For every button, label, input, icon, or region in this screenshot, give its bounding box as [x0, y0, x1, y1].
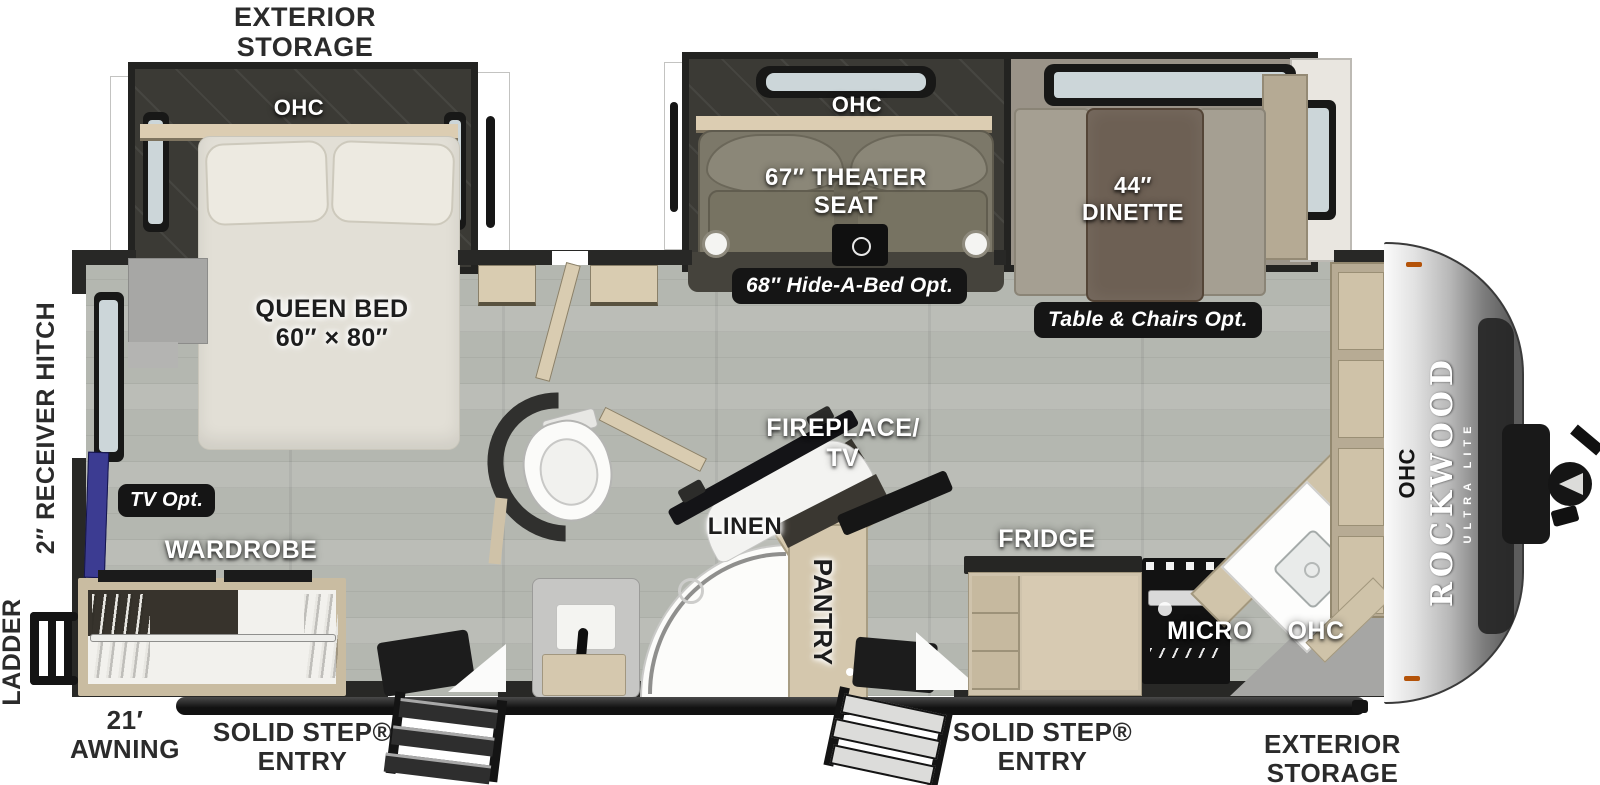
console-logo	[852, 237, 871, 256]
pillow-right	[331, 140, 456, 226]
ladder-rung	[64, 616, 72, 682]
wardrobe-countertop-item-2	[224, 570, 312, 582]
step-tread	[398, 698, 498, 729]
exterior-storage-rear-label: EXTERIOR STORAGE	[215, 2, 395, 62]
dinette-label: 44″ DINETTE	[1043, 172, 1223, 226]
bedroom-slide-flare-window	[486, 116, 495, 228]
dinette-cabinet-column	[1262, 74, 1308, 260]
awning-label: 21′ AWNING	[55, 706, 195, 764]
queen-bed-label: QUEEN BED 60″ × 80″	[232, 295, 432, 353]
wardrobe-countertop-item-1	[98, 570, 216, 582]
wall-top-3	[994, 250, 1006, 265]
bedroom-ohc-label: OHC	[254, 95, 344, 121]
ladder-rail-left	[30, 612, 39, 685]
corner-cabinet-shelf	[128, 342, 178, 368]
theater-seat-label: 67″ THEATER SEAT	[746, 164, 946, 221]
ladder-rung	[48, 616, 56, 682]
wardrobe-label: WARDROBE	[151, 536, 331, 566]
theater-slide-flare-window	[670, 102, 678, 212]
cabinet-face-2	[1338, 360, 1384, 438]
step-tread	[391, 725, 495, 756]
front-ohc-label: OHC	[1396, 438, 1421, 508]
marker-light-bottom	[1404, 676, 1420, 681]
bedroom-tv	[84, 452, 109, 579]
vanity-base	[542, 654, 626, 696]
entry-right-label: SOLID STEP® ENTRY	[950, 718, 1135, 776]
wardrobe-cabinet	[78, 578, 346, 696]
fireplace-tv-label: FIREPLACE/ TV	[763, 414, 923, 473]
fridge-door	[1022, 576, 1138, 690]
hitch-coupler	[1502, 424, 1550, 544]
theater-ohc-label: OHC	[812, 92, 902, 118]
ladder-label: LADDER	[0, 587, 26, 717]
wardrobe-rod	[90, 634, 336, 642]
pantry-label: PANTRY	[808, 532, 838, 692]
closet-door-2	[590, 265, 658, 306]
theater-slide-window-glass	[766, 73, 926, 91]
exterior-storage-front-label: EXTERIOR STORAGE	[1240, 730, 1425, 785]
dinette-side-window-glass	[1305, 108, 1329, 212]
rear-ladder	[30, 610, 84, 690]
brand-series: ULTRA LITE	[1462, 357, 1474, 607]
hitch-handle	[1570, 424, 1600, 455]
pillow-left	[205, 140, 330, 226]
awning-rail	[176, 697, 1366, 715]
cupholder-right	[962, 230, 990, 258]
entry-steps-left	[383, 687, 511, 785]
hitch-foot	[1550, 505, 1579, 527]
step-tread	[384, 753, 492, 785]
corner-cabinet	[128, 258, 208, 344]
awning-rail-endcap	[1352, 700, 1368, 713]
hide-a-bed-badge: 68″ Hide-A-Bed Opt.	[732, 268, 967, 304]
receiver-hitch-label: 2″ RECEIVER HITCH	[32, 273, 60, 583]
stove-burner	[1158, 602, 1172, 616]
stove-vents	[1150, 648, 1222, 658]
wall-left-window-gap	[72, 294, 86, 458]
fridge-label: FRIDGE	[987, 525, 1107, 555]
rear-window-glass	[99, 300, 118, 452]
brand-logo: ROCKWOOD ULTRA LITE	[1425, 357, 1485, 607]
linen-label: LINEN	[700, 513, 790, 541]
shower-drain	[678, 578, 704, 604]
closet-door-1	[478, 265, 536, 306]
brand-name: ROCKWOOD	[1425, 357, 1460, 607]
entry-left-label: SOLID STEP® ENTRY	[210, 718, 395, 776]
cabinet-face-1	[1338, 272, 1384, 350]
dinette-skylight-glass	[1054, 72, 1286, 98]
table-chairs-badge: Table & Chairs Opt.	[1034, 302, 1262, 338]
cupholder-left	[702, 230, 730, 258]
kitchen-ohc-label: OHC	[1276, 617, 1356, 647]
cabinet-face-3	[1338, 448, 1384, 526]
tv-opt-badge: TV Opt.	[118, 484, 215, 517]
micro-label: MICRO	[1150, 617, 1270, 647]
fridge-drawers	[972, 576, 1020, 690]
floorplan: ROCKWOOD ULTRA LITE 68″ Hide-A-Bed Opt. …	[0, 0, 1600, 785]
marker-light-top	[1406, 262, 1422, 267]
